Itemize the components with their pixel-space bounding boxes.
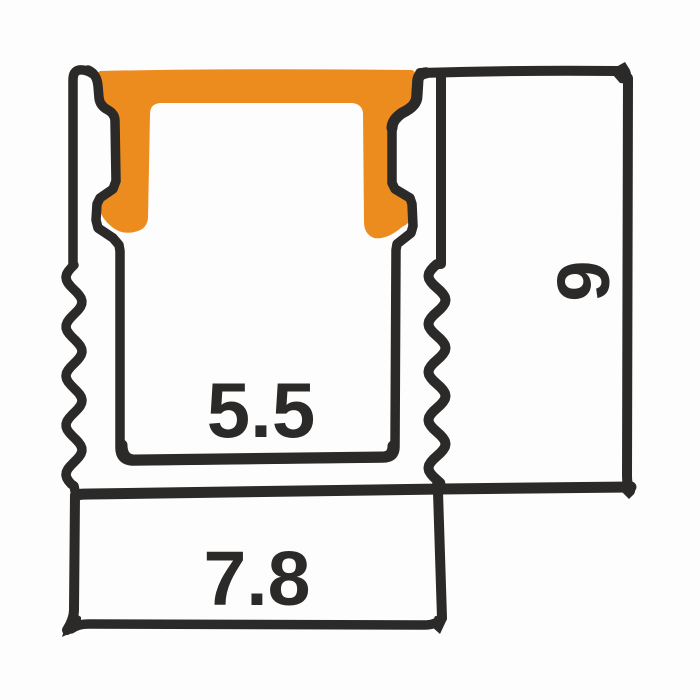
svg-text:9: 9 xyxy=(542,260,625,301)
svg-text:7.8: 7.8 xyxy=(203,536,310,622)
svg-text:5.5: 5.5 xyxy=(207,366,315,454)
